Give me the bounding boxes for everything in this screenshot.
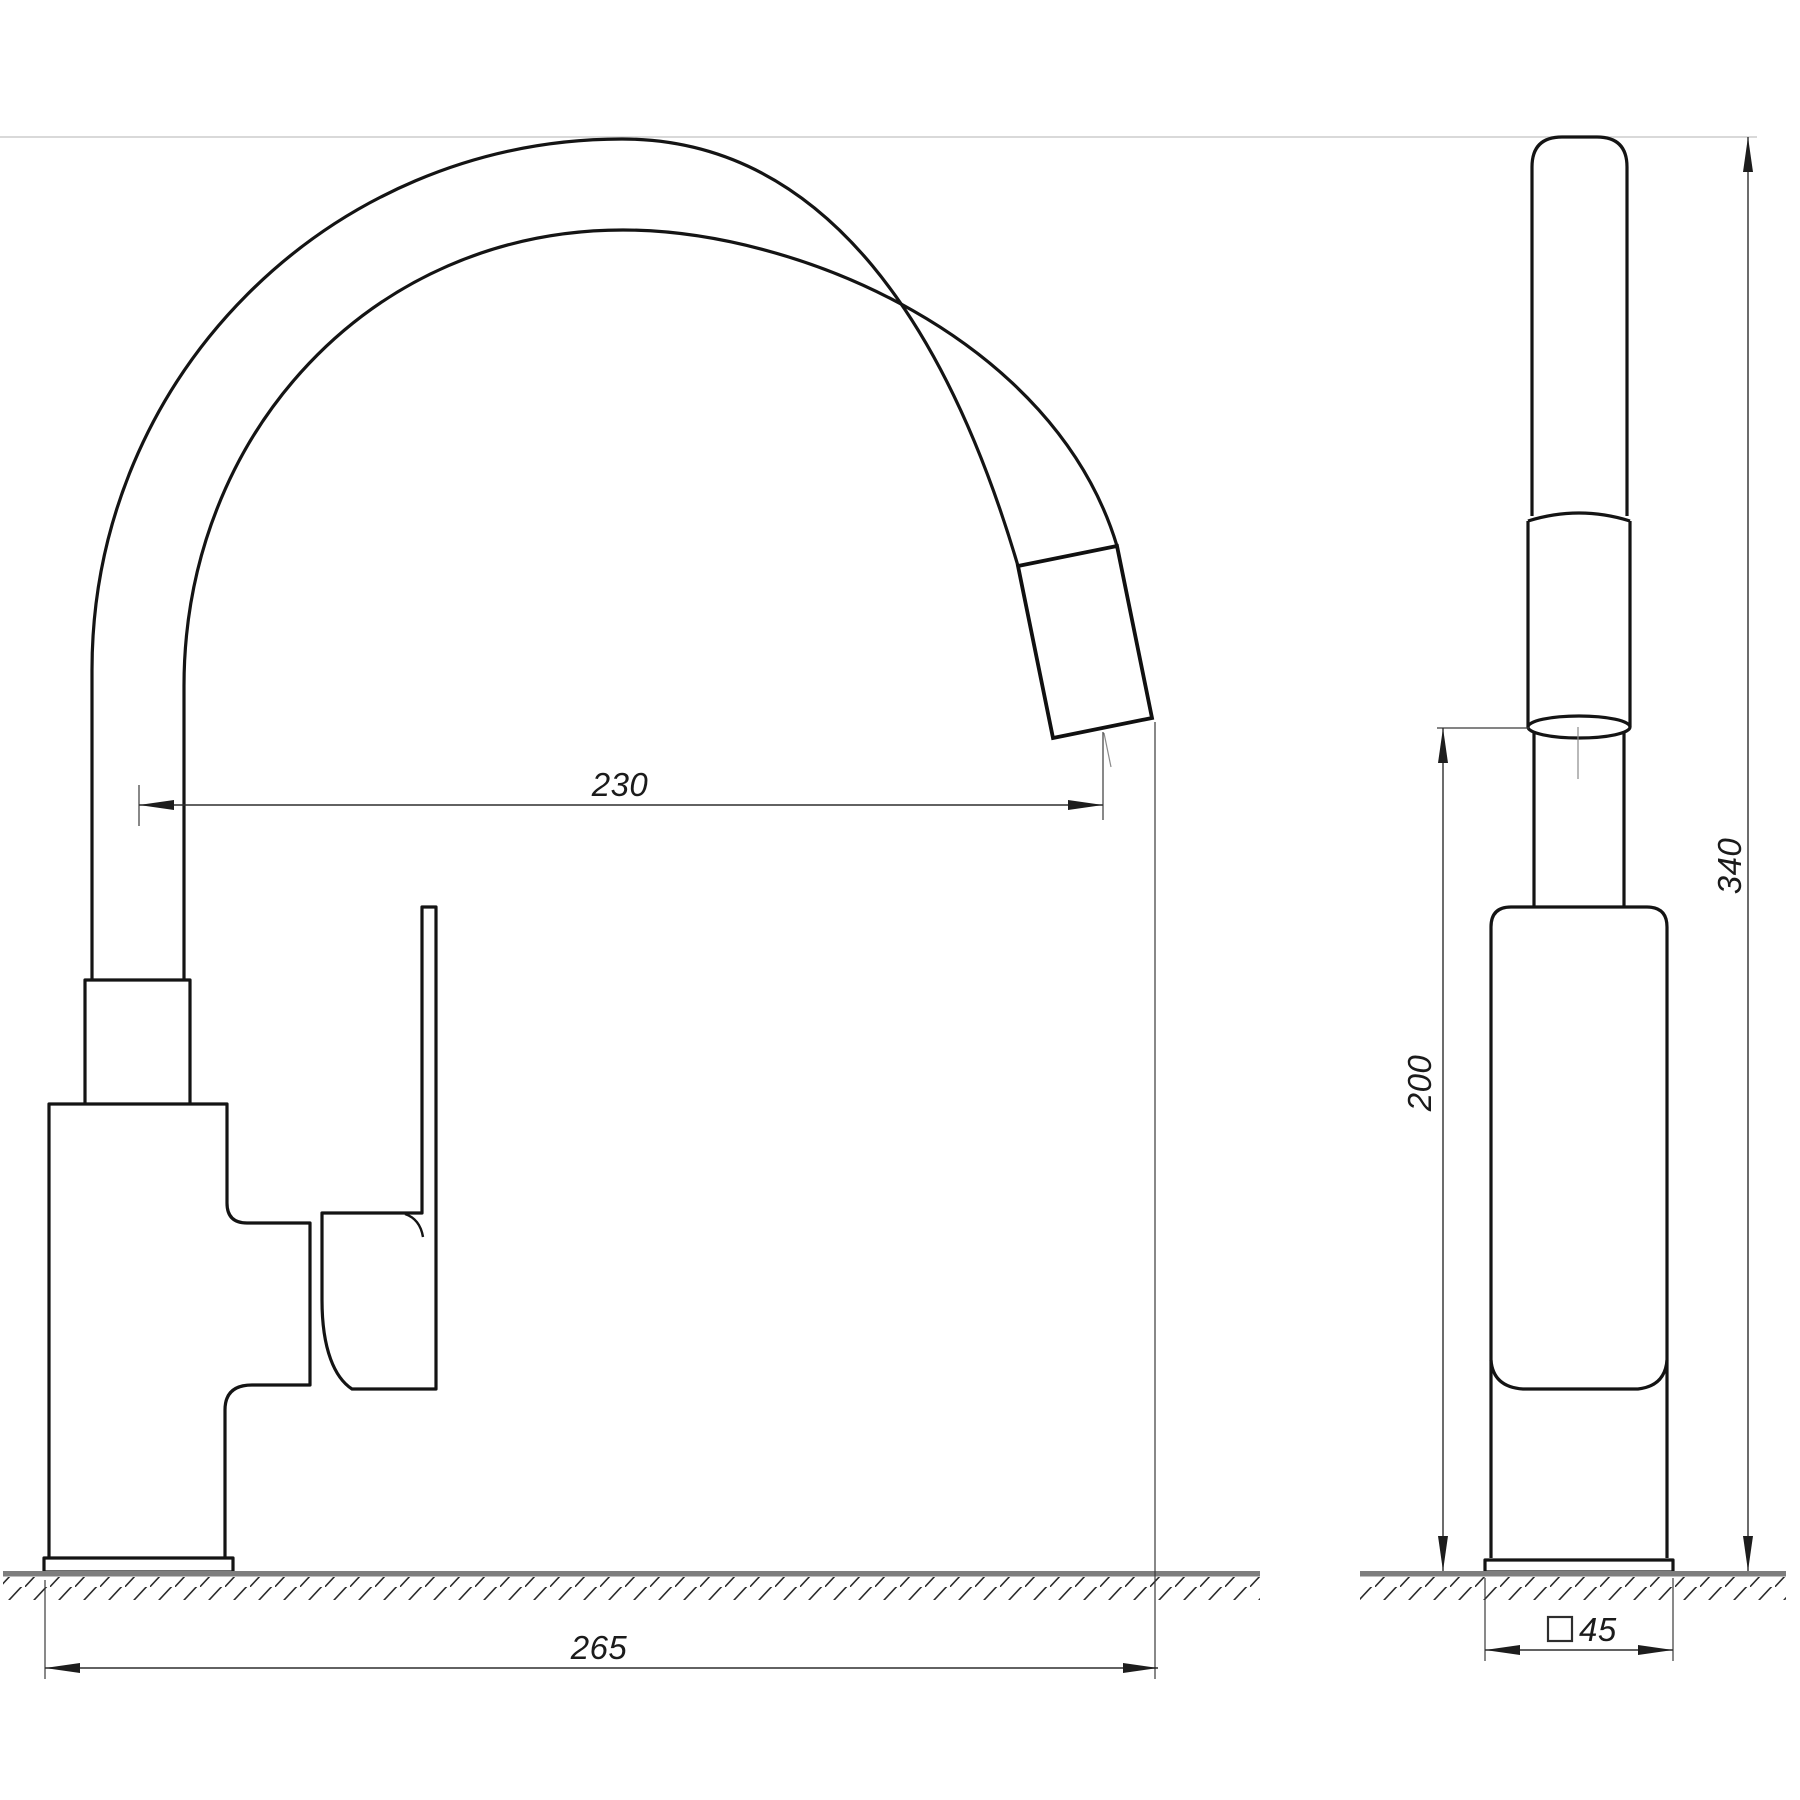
- arrow-down-icon: [1743, 1536, 1753, 1571]
- body-outline-front: [1491, 907, 1667, 1558]
- arrow-right-icon: [1068, 800, 1103, 810]
- arrow-right-icon: [1123, 1663, 1158, 1673]
- ground-hatch-right: [1360, 1577, 1786, 1600]
- spout-inner-curve: [184, 230, 1117, 981]
- body-shell-bottom: [1491, 1360, 1667, 1389]
- base-plate-side: [44, 1558, 233, 1572]
- dim-overall-depth-label: 265: [570, 1629, 628, 1666]
- dim-base-size-label: 45: [1579, 1611, 1617, 1648]
- arrow-down-icon: [1438, 1536, 1448, 1571]
- arrow-right-icon: [1638, 1645, 1673, 1655]
- dimension-spout-reach: 230: [139, 732, 1103, 826]
- dim-outlet-height-label: 200: [1401, 1055, 1438, 1113]
- handle-lever-fillet: [405, 1214, 423, 1237]
- nozzle-axis-stub: [1104, 733, 1111, 767]
- square-symbol-icon: [1548, 1617, 1572, 1641]
- side-view: [44, 139, 1152, 1572]
- arrow-left-icon: [139, 800, 174, 810]
- spout-collar: [85, 980, 190, 1104]
- front-view: [1485, 137, 1673, 1572]
- dim-spout-reach-label: 230: [591, 766, 649, 803]
- arrow-left-icon: [45, 1663, 80, 1673]
- base-plate-front: [1485, 1560, 1673, 1572]
- spout-nozzle: [1018, 546, 1152, 738]
- technical-drawing: 230 265 200 340 45: [0, 0, 1800, 1800]
- spout-outer-curve: [92, 139, 1018, 981]
- ground-hatch-left: [3, 1577, 1260, 1600]
- dim-overall-height-label: 340: [1711, 838, 1748, 895]
- arrow-left-icon: [1485, 1645, 1520, 1655]
- handle-assembly: [322, 907, 436, 1389]
- ground-line-left: [3, 1571, 1260, 1577]
- drawing-sheet: 230 265 200 340 45: [0, 0, 1800, 1800]
- ground: [3, 1571, 1786, 1600]
- ground-line-right: [1360, 1571, 1786, 1577]
- dimension-overall-height: 340: [1711, 137, 1753, 1571]
- dimension-overall-depth: 265: [45, 722, 1158, 1679]
- dimension-outlet-height: 200: [1401, 728, 1529, 1571]
- faucet-body: [49, 1104, 310, 1558]
- arrow-up-icon: [1438, 728, 1448, 763]
- spray-head-outline: [1532, 137, 1627, 516]
- arrow-up-icon: [1743, 137, 1753, 172]
- collar-bottom-ellipse: [1528, 716, 1630, 738]
- collar-top-arc: [1528, 513, 1630, 521]
